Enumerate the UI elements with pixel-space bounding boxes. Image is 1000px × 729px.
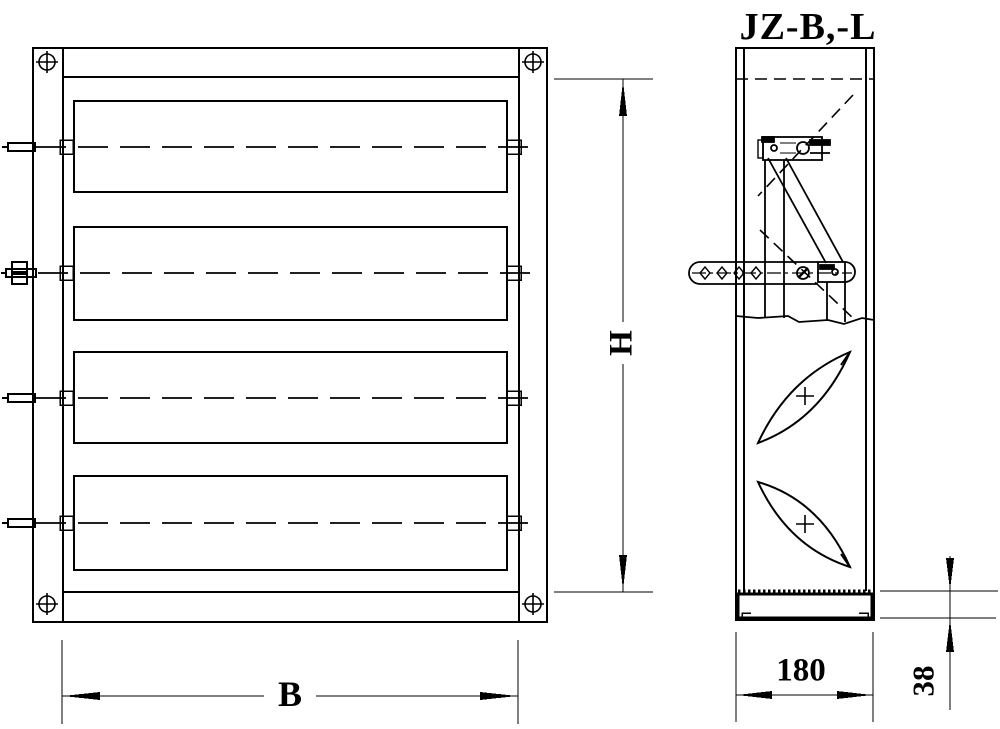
axle-bearings [60, 140, 521, 530]
width-dimension-label: B [278, 676, 302, 712]
technical-drawing-canvas: JZ-B,-L H B 180 38 [0, 0, 1000, 729]
depth-dimension-label: 180 [776, 655, 826, 688]
damper-drawing-linework [0, 0, 1000, 729]
blade-profiles [758, 352, 850, 567]
blade-centerlines [36, 147, 530, 523]
linkage-mechanism [689, 137, 855, 322]
front-view [33, 48, 547, 622]
frame-depth-dimension-label: 38 [908, 666, 939, 697]
height-dimension-label: H [606, 330, 639, 356]
break-line [736, 316, 874, 324]
axle-stubs [2, 143, 35, 527]
corner-screw-icons [36, 51, 544, 615]
drive-axle [1, 262, 36, 284]
side-view-frame [736, 48, 874, 620]
bottom-rail [738, 591, 872, 618]
model-title: JZ-B,-L [740, 8, 877, 46]
